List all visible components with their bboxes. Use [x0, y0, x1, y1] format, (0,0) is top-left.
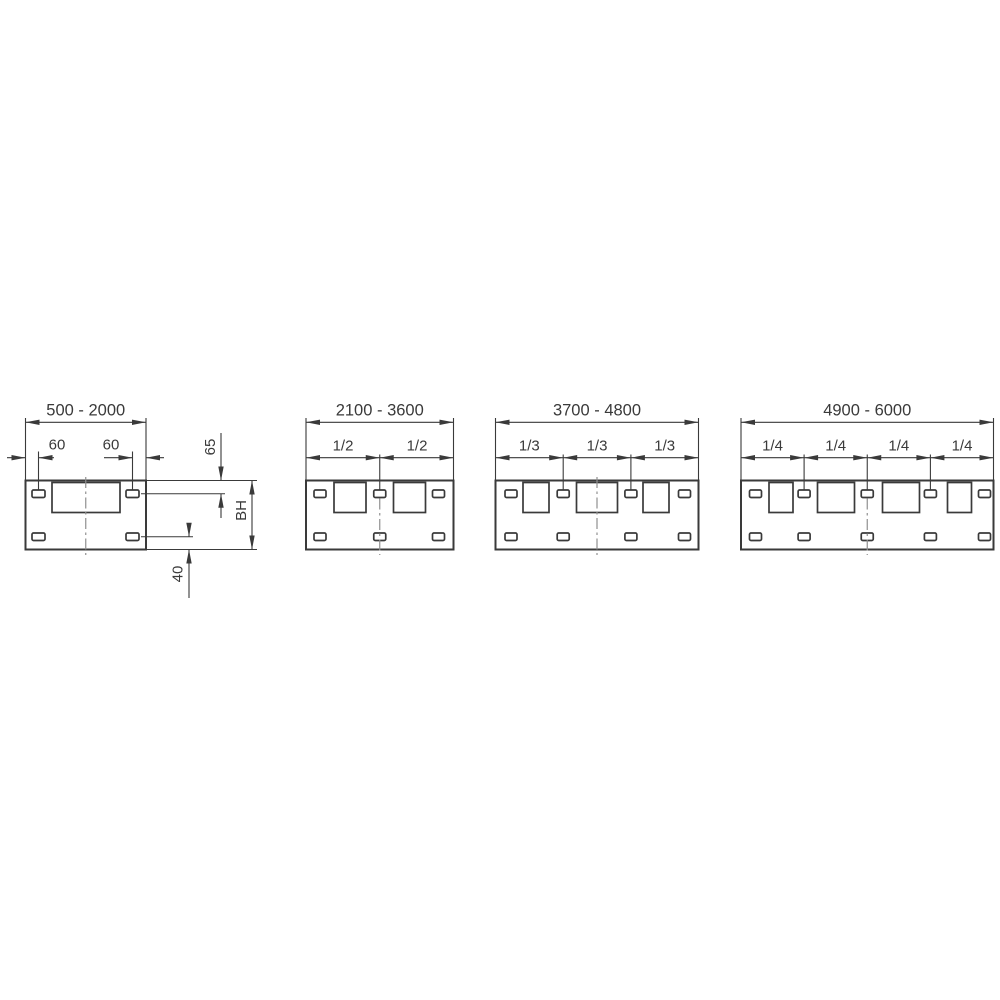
mounting-slot — [314, 490, 326, 498]
mounting-slot — [433, 490, 445, 498]
arrowhead — [306, 455, 320, 460]
width-range-label: 500 - 2000 — [46, 402, 125, 420]
diagram-3700-4800: 3700 - 4800 1/3 1/3 1/3 — [496, 402, 699, 556]
division-label: 1/2 — [333, 438, 354, 455]
window-cutout — [818, 483, 855, 513]
mounting-slot — [32, 533, 45, 541]
diagram-500-2000: 500 - 2000 60 60 65 BH — [7, 402, 257, 599]
diagram-2100-3600: 2100 - 3600 1/2 1/2 — [306, 402, 454, 556]
arrowhead — [440, 420, 454, 425]
division-label: 1/4 — [825, 438, 846, 455]
arrowhead — [306, 420, 320, 425]
mounting-slot — [679, 490, 691, 498]
window-cutout — [643, 483, 669, 513]
window-cutout — [394, 483, 426, 513]
window-cutout — [523, 483, 549, 513]
width-range-label: 4900 - 6000 — [823, 402, 911, 420]
diagram-4900-6000: 4900 - 6000 1/4 1/4 1/4 1/4 — [741, 402, 994, 556]
panel-dimension-drawing: 500 - 2000 60 60 65 BH — [0, 0, 1000, 1000]
arrowhead — [549, 455, 563, 460]
arrowhead — [440, 455, 454, 460]
arrowhead — [146, 455, 160, 460]
division-label: 1/3 — [519, 438, 540, 455]
mounting-slot — [798, 533, 810, 541]
arrowhead — [617, 455, 631, 460]
window-cutout — [769, 483, 793, 513]
mounting-slot — [374, 490, 386, 498]
width-range-label: 3700 - 4800 — [553, 402, 641, 420]
arrowhead — [380, 455, 394, 460]
arrowhead — [119, 455, 133, 460]
mounting-slot — [314, 533, 326, 541]
top-slot-offset-label: 65 — [202, 439, 219, 456]
arrowhead — [186, 523, 191, 537]
mounting-slot — [126, 490, 139, 498]
bottom-slot-offset-label: 40 — [169, 566, 186, 583]
mounting-slot — [126, 533, 139, 541]
division-label: 1/4 — [952, 438, 973, 455]
arrowhead — [980, 455, 994, 460]
arrowhead — [867, 455, 881, 460]
mounting-slot — [625, 533, 637, 541]
arrowhead — [496, 420, 510, 425]
arrowhead — [631, 455, 645, 460]
arrowhead — [132, 420, 146, 425]
arrowhead — [685, 455, 699, 460]
arrowhead — [249, 536, 254, 550]
division-label: 1/2 — [407, 438, 428, 455]
arrowhead — [12, 455, 26, 460]
width-range-label: 2100 - 3600 — [336, 402, 424, 420]
mounting-slot — [924, 490, 936, 498]
mounting-slot — [505, 533, 517, 541]
arrowhead — [186, 550, 191, 564]
window-cutout — [334, 483, 366, 513]
mounting-slot — [32, 490, 45, 498]
division-label: 1/3 — [587, 438, 608, 455]
mounting-slot — [979, 533, 991, 541]
mounting-slot — [557, 533, 569, 541]
mounting-slot — [505, 490, 517, 498]
arrowhead — [218, 494, 223, 508]
mounting-slot — [798, 490, 810, 498]
arrowhead — [741, 420, 755, 425]
arrowhead — [980, 420, 994, 425]
arrowhead — [26, 420, 40, 425]
right-slot-offset-label: 60 — [103, 437, 120, 454]
division-label: 1/4 — [762, 438, 783, 455]
mounting-slot — [979, 490, 991, 498]
arrowhead — [685, 420, 699, 425]
arrowhead — [741, 455, 755, 460]
arrowhead — [930, 455, 944, 460]
arrowhead — [853, 455, 867, 460]
mounting-slot — [557, 490, 569, 498]
arrowhead — [249, 481, 254, 495]
arrowhead — [496, 455, 510, 460]
arrowhead — [39, 455, 53, 460]
technical-drawing-canvas: 500 - 2000 60 60 65 BH — [0, 0, 1000, 1000]
mounting-slot — [625, 490, 637, 498]
arrowhead — [790, 455, 804, 460]
left-slot-offset-label: 60 — [49, 437, 66, 454]
mounting-slot — [433, 533, 445, 541]
mounting-slot — [750, 490, 762, 498]
arrowhead — [366, 455, 380, 460]
panel-height-label: BH — [233, 500, 250, 521]
arrowhead — [218, 467, 223, 481]
division-label: 1/4 — [888, 438, 909, 455]
window-cutout — [883, 483, 920, 513]
mounting-slot — [861, 490, 873, 498]
arrowhead — [916, 455, 930, 460]
window-cutout — [948, 483, 972, 513]
arrowhead — [563, 455, 577, 460]
arrowhead — [804, 455, 818, 460]
mounting-slot — [679, 533, 691, 541]
mounting-slot — [924, 533, 936, 541]
mounting-slot — [750, 533, 762, 541]
division-label: 1/3 — [654, 438, 675, 455]
